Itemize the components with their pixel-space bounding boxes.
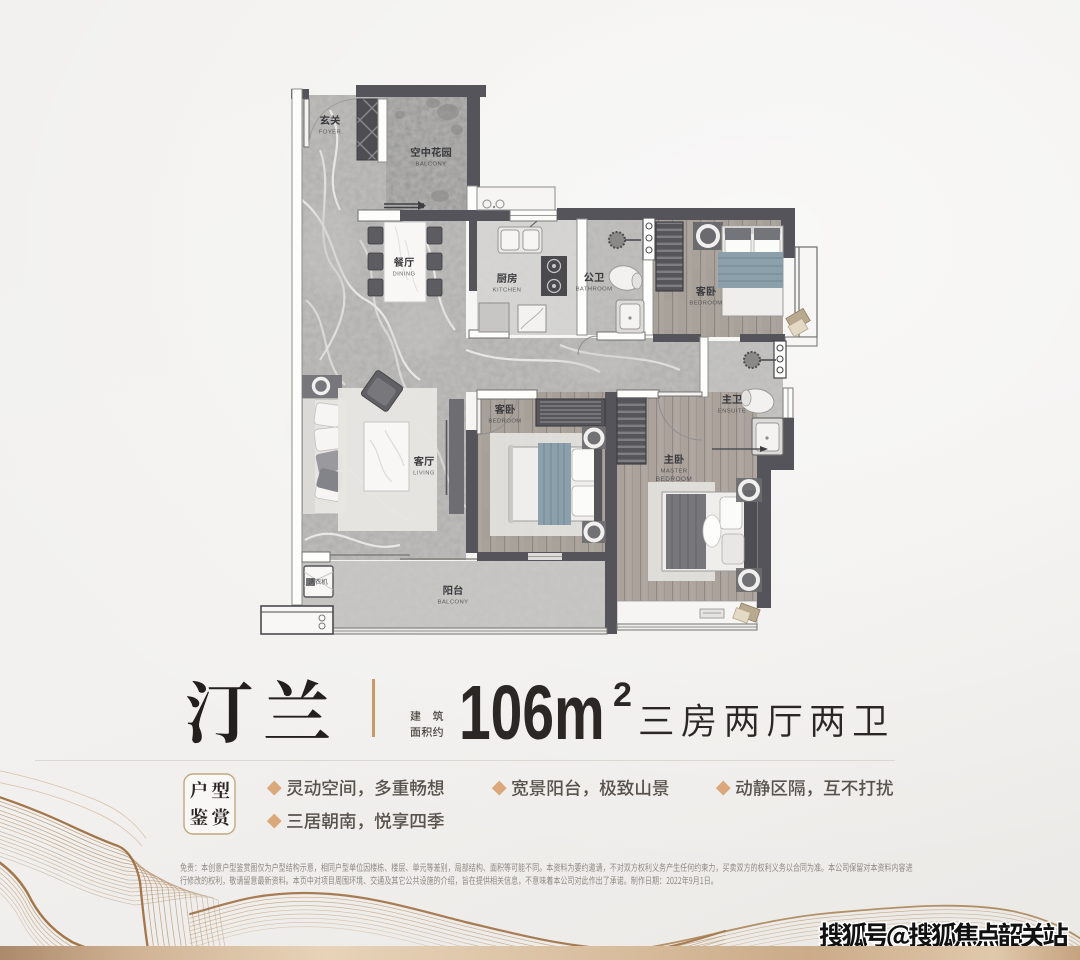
svg-text:DINING: DINING	[392, 272, 415, 278]
svg-text:FOYER: FOYER	[319, 130, 341, 136]
svg-text:ENSUITE: ENSUITE	[718, 409, 746, 415]
svg-text:2: 2	[613, 676, 632, 714]
svg-text:KITCHEN: KITCHEN	[493, 288, 522, 294]
svg-text:LIVING: LIVING	[413, 471, 435, 477]
svg-text:106m: 106m	[459, 671, 605, 756]
svg-text:BATHROOM: BATHROOM	[576, 287, 613, 293]
svg-text:BALCONY: BALCONY	[416, 162, 447, 168]
svg-text:BEDROOM: BEDROOM	[488, 419, 521, 425]
svg-text:BEDROOM: BEDROOM	[656, 476, 692, 483]
svg-text:BALCONY: BALCONY	[438, 600, 469, 606]
svg-text:MASTER: MASTER	[661, 469, 688, 475]
svg-text:BEDROOM: BEDROOM	[689, 301, 722, 307]
